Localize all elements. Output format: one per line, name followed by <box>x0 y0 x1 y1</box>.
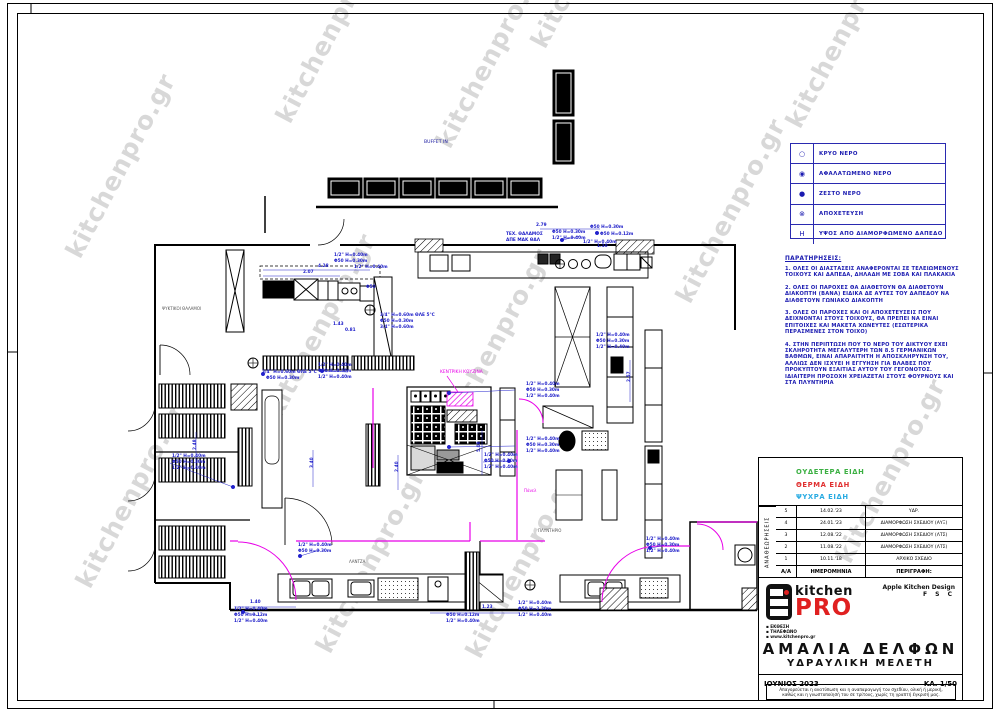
notes-block: ΠΑΡΑΤΗΡΗΣΕΙΣ: 1. ΟΛΕΣ ΟΙ ΔΙΑΣΤΑΣΕΙΣ ΑΝΑΦ… <box>785 256 961 393</box>
contact-line: ▪ www.kitchenpro.gr <box>766 634 815 639</box>
legend-row: ◉ΑΦΑΛΑΤΩΜΕΝΟ ΝΕΡΟ <box>791 164 945 184</box>
notes-items: 1. ΟΛΕΣ ΟΙ ΔΙΑΣΤΑΣΕΙΣ ΑΝΑΦΕΡΟΝΤΑΙ ΣΕ ΤΕΛ… <box>785 266 961 387</box>
revision-num: 4 <box>776 518 797 530</box>
legend-label: ΑΠΟΧΕΤΕΥΣΗ <box>814 211 864 217</box>
logo-dot-1 <box>784 590 789 595</box>
kitchenpro-logo-icon <box>766 584 792 620</box>
revision-date: 10.11.'18 <box>797 554 866 566</box>
revision-num: 2 <box>776 542 797 554</box>
revision-desc: ΔΙΑΜΟΡΦΩΣΗ ΣΧΕΔΙΟΥ (ΑΥΞ) <box>866 518 963 530</box>
revision-vertical-label: ΑΝΑΘΕΩΡΗΣΕΙΣ <box>758 506 776 578</box>
color-key-item: ΨΥΧΡΑ ΕΙΔΗ <box>796 491 956 504</box>
note-item: 3. ΟΛΕΣ ΟΙ ΠΑΡΟΧΕΣ ΚΑΙ ΟΙ ΑΠΟΧΕΤΕΥΣΕΙΣ Π… <box>785 310 961 336</box>
note-item: 1. ΟΛΕΣ ΟΙ ΔΙΑΣΤΑΣΕΙΣ ΑΝΑΦΕΡΟΝΤΑΙ ΣΕ ΤΕΛ… <box>785 266 961 279</box>
drawing-sheet: kitchenpro.grkitchenpro.grkitchenpro.grk… <box>0 0 1000 712</box>
legend-symbol: ⊗ <box>791 205 814 224</box>
legend-row: ●ΖΕΣΤΟ ΝΕΡΟ <box>791 184 945 204</box>
legend-row: ○ΚΡΥΟ ΝΕΡΟ <box>791 144 945 164</box>
notes-title: ΠΑΡΑΤΗΡΗΣΕΙΣ: <box>785 256 961 262</box>
revision-num: 3 <box>776 530 797 542</box>
legend-label: ΥΨΟΣ ΑΠΟ ΔΙΑΜΟΡΦΩΜΕΝΟ ΔΑΠΕΔΟ <box>814 231 943 237</box>
legend-symbol: ● <box>791 184 814 203</box>
title-block: kitchen PRO ▪ ΕΚΘΕΣΗ▪ ΤΗΛΕΦΩΝΟ▪ www.kitc… <box>758 577 963 682</box>
revision-date: 14.02.'23 <box>797 506 866 518</box>
contact-lines: ▪ ΕΚΘΕΣΗ▪ ΤΗΛΕΦΩΝΟ▪ www.kitchenpro.gr <box>766 624 815 640</box>
color-key-item: ΟΥΔΕΤΕΡΑ ΕΙΔΗ <box>796 466 956 479</box>
designer-line2: F S C <box>882 591 955 598</box>
legend-symbol: ○ <box>791 144 814 163</box>
brand-pro: PRO <box>795 595 852 621</box>
logo-bar-2 <box>770 599 788 606</box>
revision-desc: ΔΙΑΜΟΡΦΩΣΗ ΣΧΕΔΙΟΥ (ΛΤΣ) <box>866 542 963 554</box>
revision-desc: ΥΔΡ. <box>866 506 963 518</box>
revision-num: 1 <box>776 554 797 566</box>
color-key-item: ΘΕΡΜΑ ΕΙΔΗ <box>796 479 956 492</box>
legend-row: ⊗ΑΠΟΧΕΤΕΥΣΗ <box>791 205 945 225</box>
disclaimer: Απαγορεύεται η ανατύπωση και η αναπαραγω… <box>766 684 956 700</box>
legend-label: ΚΡΥΟ ΝΕΡΟ <box>814 151 858 157</box>
designer-credit: Apple Kitchen Design F S C <box>882 584 955 598</box>
revision-date: 12.08.'22 <box>797 530 866 542</box>
legend-row: ΗΥΨΟΣ ΑΠΟ ΔΙΑΜΟΡΦΩΜΕΝΟ ΔΑΠΕΔΟ <box>791 225 945 244</box>
legend-label: ΖΕΣΤΟ ΝΕΡΟ <box>814 191 861 197</box>
project-title: ΑΜΑΛΙΑ ΔΕΛΦΩΝ <box>758 640 963 658</box>
legend-symbol: ◉ <box>791 164 814 183</box>
revision-date: 24.01.'23 <box>797 518 866 530</box>
revision-desc: ΑΡΧΙΚΟ ΣΧΕΔΙΟ <box>866 554 963 566</box>
note-item: 2. ΟΛΕΣ ΟΙ ΠΑΡΟΧΕΣ ΘΑ ΔΙΑΘΕΤΟΥΝ ΘΑ ΔΙΑΘΕ… <box>785 285 961 304</box>
project-subtitle: ΥΔΡΑΥΛΙΚΗ ΜΕΛΕΤΗ <box>758 658 963 669</box>
designer-line1: Apple Kitchen Design <box>882 584 955 591</box>
legend-label: ΑΦΑΛΑΤΩΜΕΝΟ ΝΕΡΟ <box>814 171 892 177</box>
logo-bar-3 <box>770 609 788 616</box>
note-item: 4. ΣΤΗΝ ΠΕΡΙΠΤΩΣΗ ΠΟΥ ΤΟ ΝΕΡΟ ΤΟΥ ΔΙΚΤΥΟ… <box>785 342 961 387</box>
color-key: ΟΥΔΕΤΕΡΑ ΕΙΔΗΘΕΡΜΑ ΕΙΔΗΨΥΧΡΑ ΕΙΔΗ <box>796 466 956 504</box>
revision-num: 5 <box>776 506 797 518</box>
revision-table: ΑΝΑΘΕΩΡΗΣΕΙΣ514.02.'23ΥΔΡ.424.01.'23ΔΙΑΜ… <box>758 505 963 577</box>
revision-desc: ΔΙΑΜΟΡΦΩΣΗ ΣΧΕΔΙΟΥ (ΛΤΣ) <box>866 530 963 542</box>
revision-date: 11.08.'22 <box>797 542 866 554</box>
logo-bar-1 <box>770 589 783 596</box>
piping-legend: ○ΚΡΥΟ ΝΕΡΟ◉ΑΦΑΛΑΤΩΜΕΝΟ ΝΕΡΟ●ΖΕΣΤΟ ΝΕΡΟ⊗Α… <box>790 143 946 239</box>
legend-symbol: Η <box>791 225 814 244</box>
